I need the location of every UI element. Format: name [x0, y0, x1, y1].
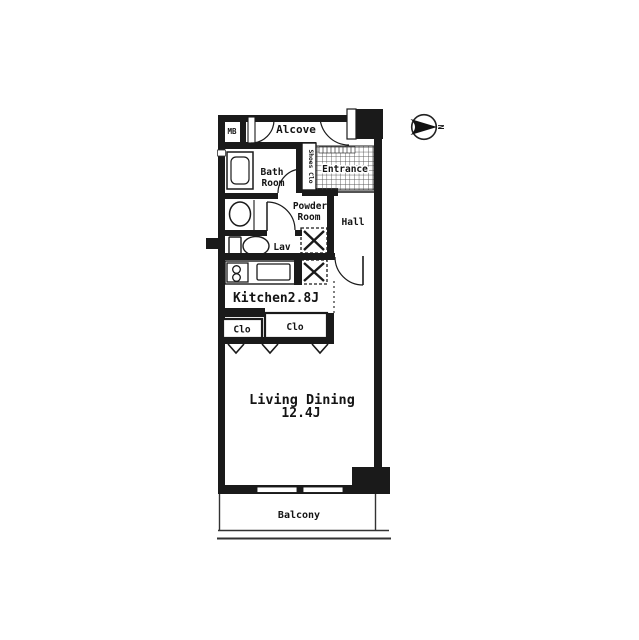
hall-label: Hall: [342, 217, 365, 228]
powder-room-fixtures: [230, 200, 296, 231]
powder-label-1: Powder: [293, 201, 328, 212]
washbasin-icon: [230, 202, 251, 226]
lav-label: Lav: [273, 242, 290, 253]
mb-door-leaf: [248, 117, 255, 143]
floorplan-drawing: N MB Alcove Shoes Clo Entrance Bath Room…: [0, 0, 639, 640]
toilet-tank-icon: [229, 237, 241, 254]
wall-stub-left: [206, 238, 218, 249]
window-right: [303, 487, 343, 493]
wall-hall-left: [327, 196, 334, 256]
living-label-2: 12.4J: [281, 406, 320, 421]
shoes-closet-label: Shoes Clo: [307, 149, 314, 183]
hall-door-arc-icon: [335, 257, 363, 285]
closet-door-mark-2: [262, 344, 278, 353]
column-bottom-right: [352, 467, 390, 494]
closet-right-label: Clo: [286, 322, 303, 333]
bath-window: [218, 150, 226, 156]
wall-kitchen-living: [218, 308, 265, 317]
compass-needle: [411, 119, 438, 135]
bath-label-2: Room: [262, 178, 285, 189]
alcove-label: Alcove: [276, 123, 316, 136]
stove-burner-bottom: [233, 274, 241, 282]
lav-fixtures: [229, 237, 269, 256]
mb-label: MB: [227, 127, 237, 136]
entrance-door-leaf: [347, 109, 356, 139]
wall-powder-lav-a: [218, 230, 267, 236]
bathtub-inner: [231, 157, 249, 184]
wall-top: [218, 115, 349, 122]
hall-door: [335, 256, 363, 285]
kitchen-label: Kitchen2.8J: [233, 291, 319, 306]
closet-door-mark-1: [228, 344, 244, 353]
wall-alcove-bath: [218, 142, 316, 149]
floorplan-page: N MB Alcove Shoes Clo Entrance Bath Room…: [0, 0, 639, 640]
wall-bath-right: [296, 148, 302, 193]
wall-left: [218, 115, 225, 494]
fridge-space-x-icon: [304, 263, 324, 281]
wall-mb-right: [240, 115, 246, 142]
entrance-sill: [319, 147, 355, 153]
compass-icon: N: [411, 115, 446, 140]
stove-burner-top: [233, 266, 241, 274]
bath-label-1: Bath: [261, 167, 284, 178]
balcony-label: Balcony: [278, 510, 320, 521]
closet-left-label: Clo: [233, 325, 250, 336]
powder-door-arc-icon: [267, 202, 295, 230]
washer-space-x-icon: [304, 231, 324, 250]
window-left: [257, 487, 297, 493]
column-top-right: [355, 109, 383, 139]
closet-door-mark-3: [312, 344, 328, 353]
entrance-label: Entrance: [322, 164, 368, 175]
compass-north-label: N: [436, 125, 445, 130]
toilet-bowl-icon: [243, 237, 269, 256]
powder-label-2: Room: [298, 212, 321, 223]
wall-right: [374, 138, 382, 469]
wall-bath-powder: [218, 193, 278, 199]
sink-icon: [257, 264, 290, 280]
